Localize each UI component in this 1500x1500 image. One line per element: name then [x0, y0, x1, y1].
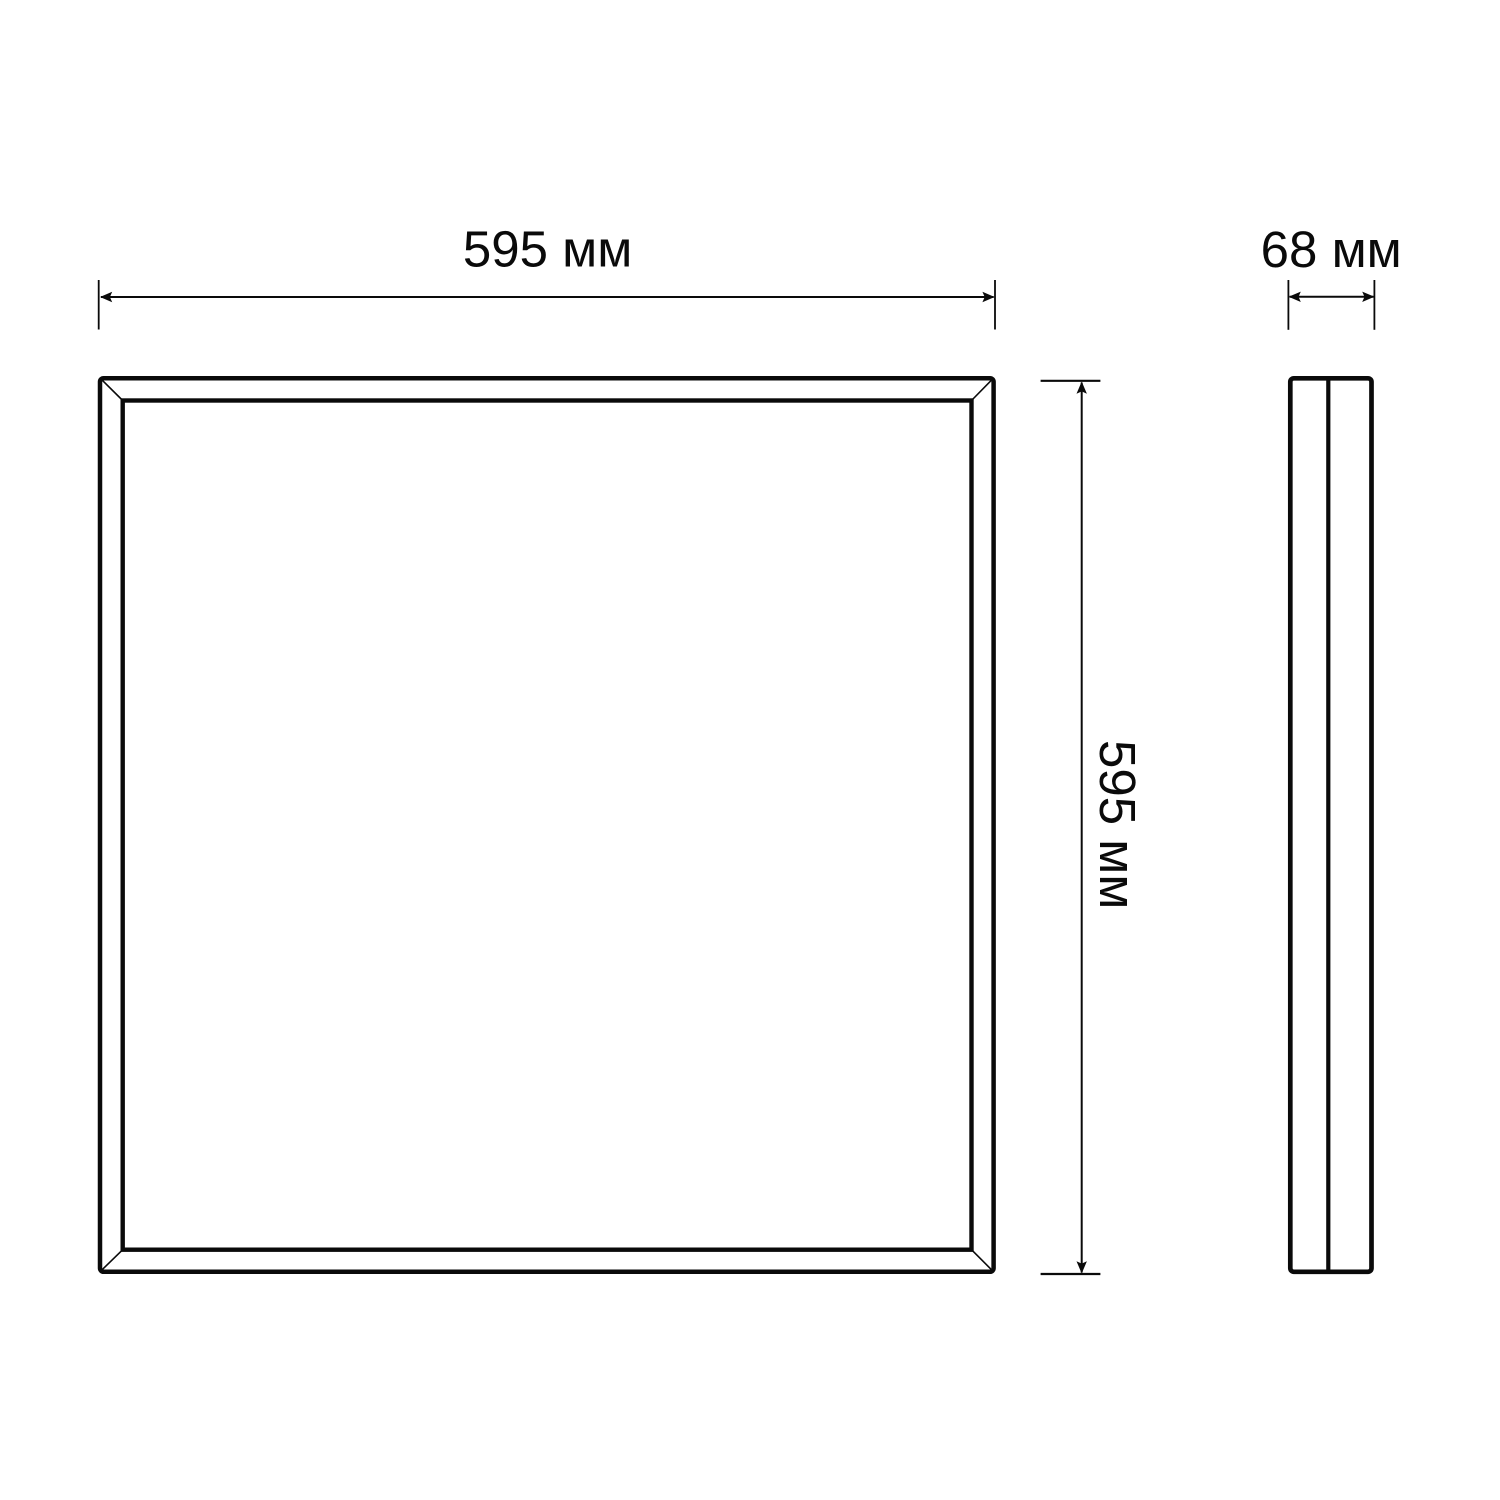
svg-text:595 мм: 595 мм — [463, 221, 632, 278]
svg-text:68 мм: 68 мм — [1261, 221, 1402, 278]
svg-text:595 мм: 595 мм — [1089, 740, 1146, 909]
